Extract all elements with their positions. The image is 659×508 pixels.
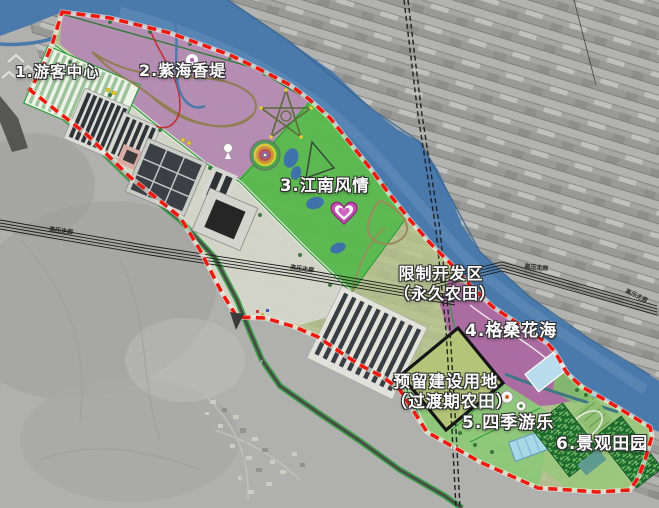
zone-label-landscape-fields: 6.景观田园	[556, 429, 648, 454]
rainbow-spiral-feature	[250, 140, 280, 170]
zone-label-jiangnan: 3.江南风情	[280, 172, 370, 196]
zone-label-gesang-flowers: 4.格桑花海	[465, 316, 557, 341]
zone-label-purple-sea: 2.紫海香堤	[139, 57, 226, 81]
restricted-area-label-line2: （永久农田）	[394, 280, 496, 304]
zone-label-four-seasons: 5.四季游乐	[462, 408, 554, 433]
zone-label-visitor-center: 1.游客中心	[15, 60, 100, 82]
site-plan-map: 1.游客中心 2.紫海香堤 3.江南风情 限制开发区 （永久农田） 4.格桑花海…	[0, 0, 659, 508]
